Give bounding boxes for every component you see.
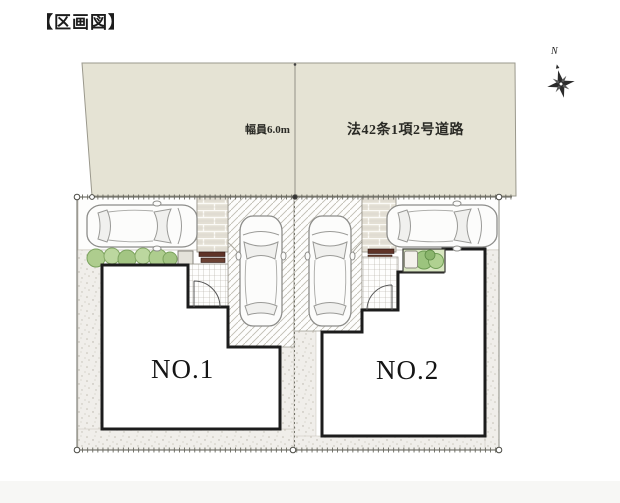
car-icon <box>87 201 197 251</box>
lot2-planting-bed <box>403 249 445 272</box>
road-type-label: 法42条1項2号道路 <box>347 119 464 139</box>
north-label: N <box>551 46 558 57</box>
lot1-brick-approach <box>197 197 228 252</box>
page-title: 【区画図】 <box>36 8 126 33</box>
lot1-entrance-mat <box>199 252 225 263</box>
road-width-label: 幅員6.0m <box>245 121 290 137</box>
plot-plan-page: 【区画図】 幅員6.0m 法42条1項2号道路 NO.1 NO.2 N <box>0 0 620 503</box>
car-icon <box>236 216 286 326</box>
lot2-entrance-porch <box>362 257 398 310</box>
background-band <box>0 481 620 503</box>
road-line-tick <box>294 63 297 66</box>
car-icon <box>305 216 355 326</box>
compass-rose-icon <box>543 62 577 101</box>
lot1-number-label: NO.1 <box>151 354 214 385</box>
car-icon <box>387 201 497 251</box>
lot2-number-label: NO.2 <box>376 355 439 386</box>
site-plan <box>0 0 620 503</box>
